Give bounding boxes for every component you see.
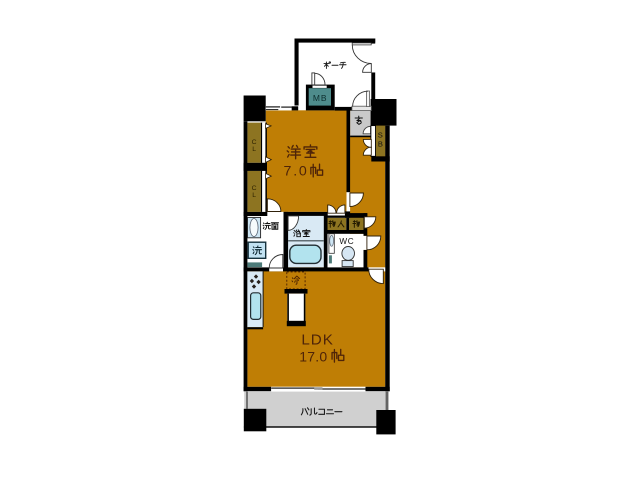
svg-text:B: B [378, 140, 383, 149]
svg-text:L: L [252, 146, 256, 153]
svg-text:LDK: LDK [301, 331, 334, 348]
svg-text:L: L [252, 192, 256, 199]
svg-text:MB: MB [313, 93, 328, 103]
svg-text:7.0: 7.0 [284, 164, 309, 180]
svg-text:WC: WC [339, 237, 354, 246]
svg-text:S: S [378, 131, 383, 140]
svg-text:17.0: 17.0 [299, 348, 327, 364]
